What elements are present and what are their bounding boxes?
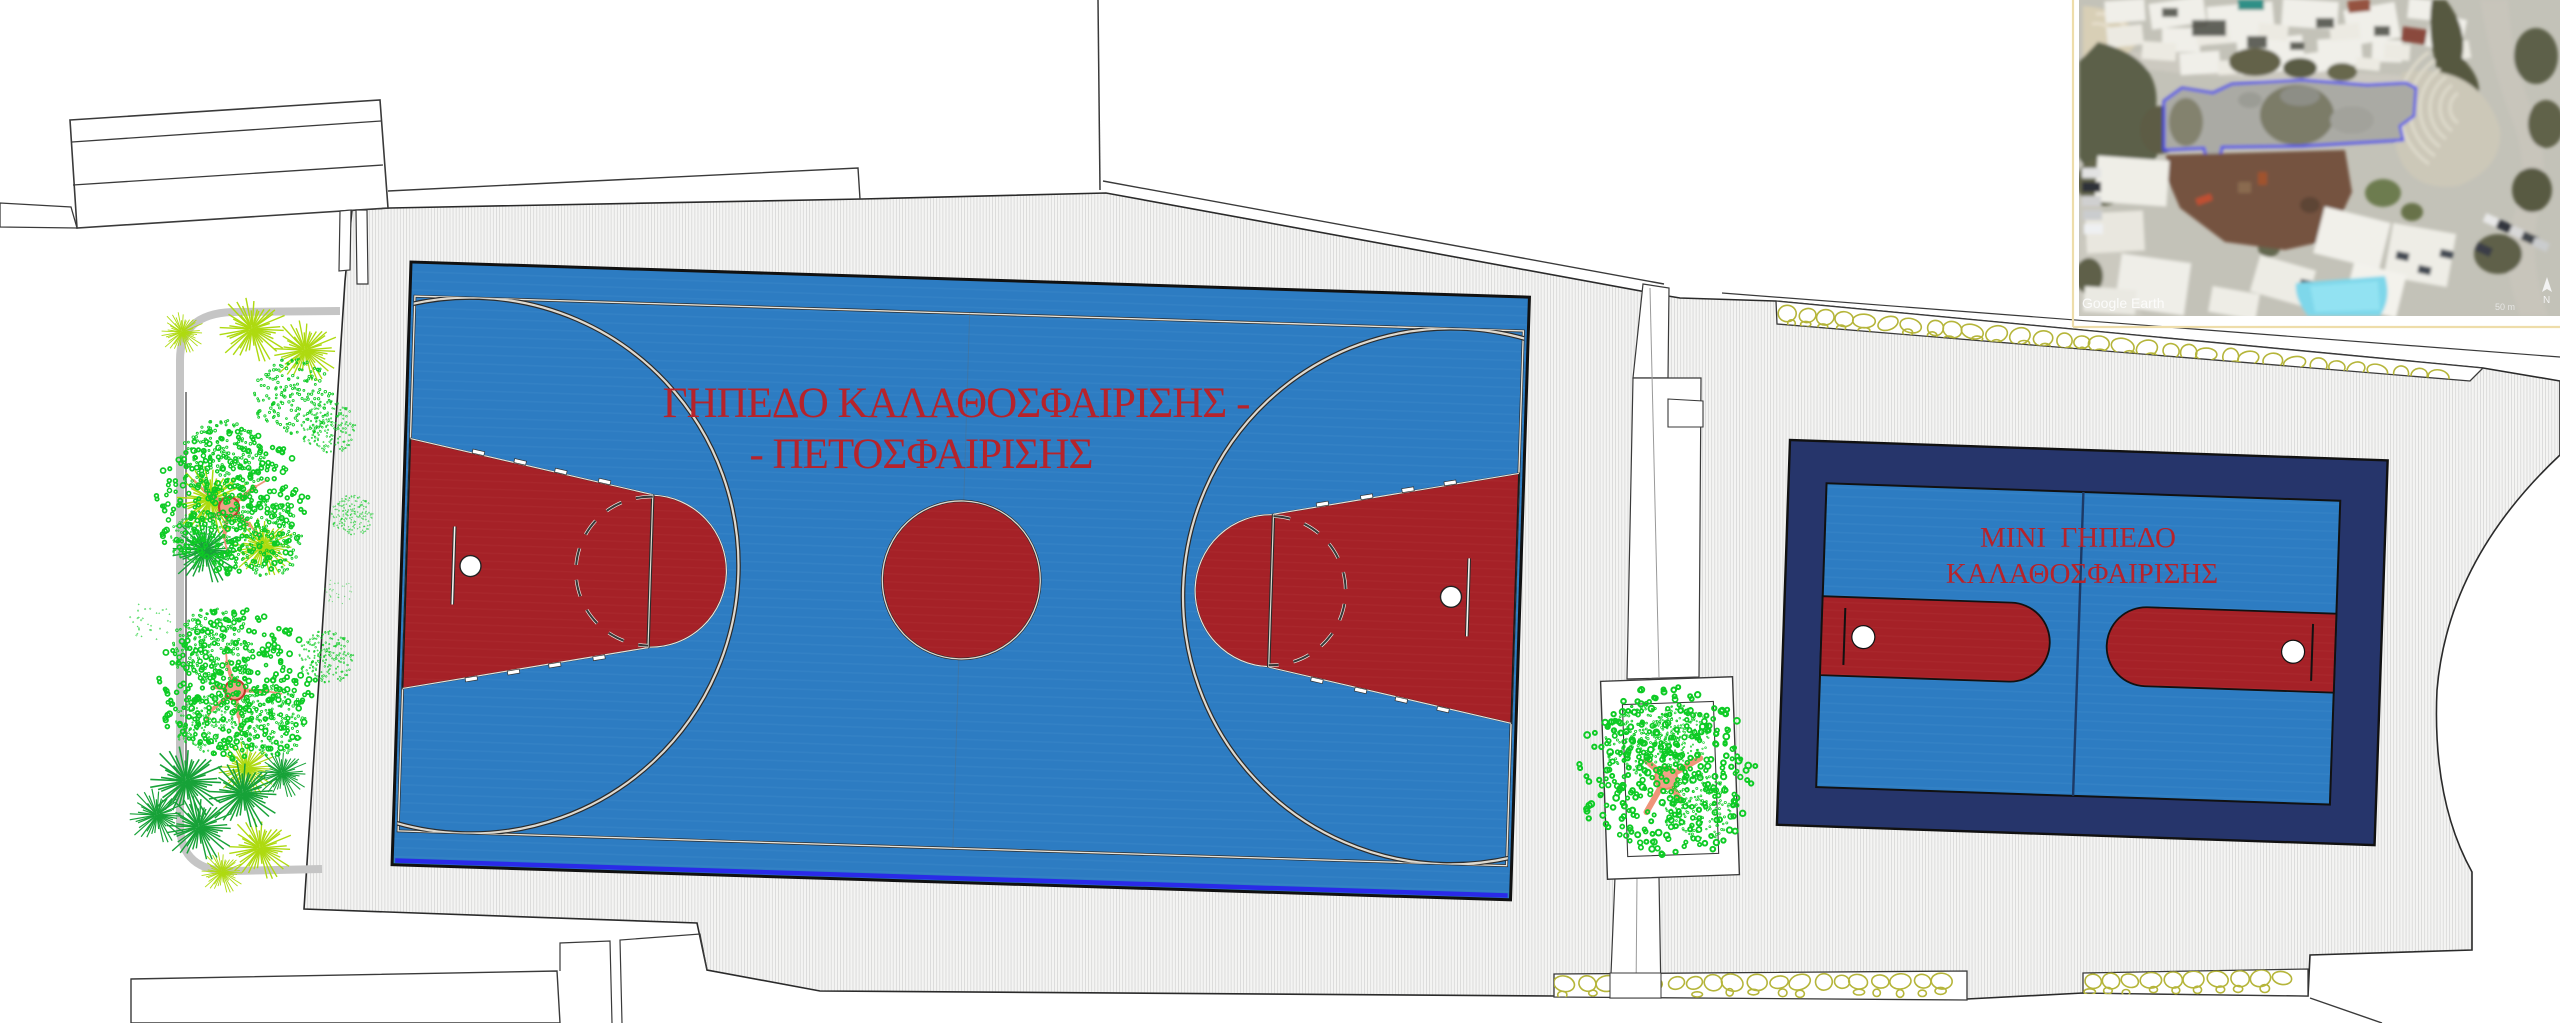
svg-text:Google Earth: Google Earth bbox=[2082, 295, 2165, 311]
svg-text:ΜΙΝΙ ΓΗΠΕΔΟ: ΜΙΝΙ ΓΗΠΕΔΟ bbox=[1980, 522, 2176, 554]
svg-text:N: N bbox=[2543, 295, 2550, 306]
svg-text:ΓΗΠΕΔΟ ΚΑΛΑΘΟΣΦΑΙΡΙΣΗΣ -: ΓΗΠΕΔΟ ΚΑΛΑΘΟΣΦΑΙΡΙΣΗΣ - bbox=[663, 380, 1250, 427]
svg-text:ΚΑΛΑΘΟΣΦΑΙΡΙΣΗΣ: ΚΑΛΑΘΟΣΦΑΙΡΙΣΗΣ bbox=[1946, 558, 2218, 590]
svg-text:50 m: 50 m bbox=[2495, 302, 2515, 312]
svg-text:- ΠΕΤΟΣΦΑΙΡΙΣΗΣ: - ΠΕΤΟΣΦΑΙΡΙΣΗΣ bbox=[749, 431, 1092, 478]
